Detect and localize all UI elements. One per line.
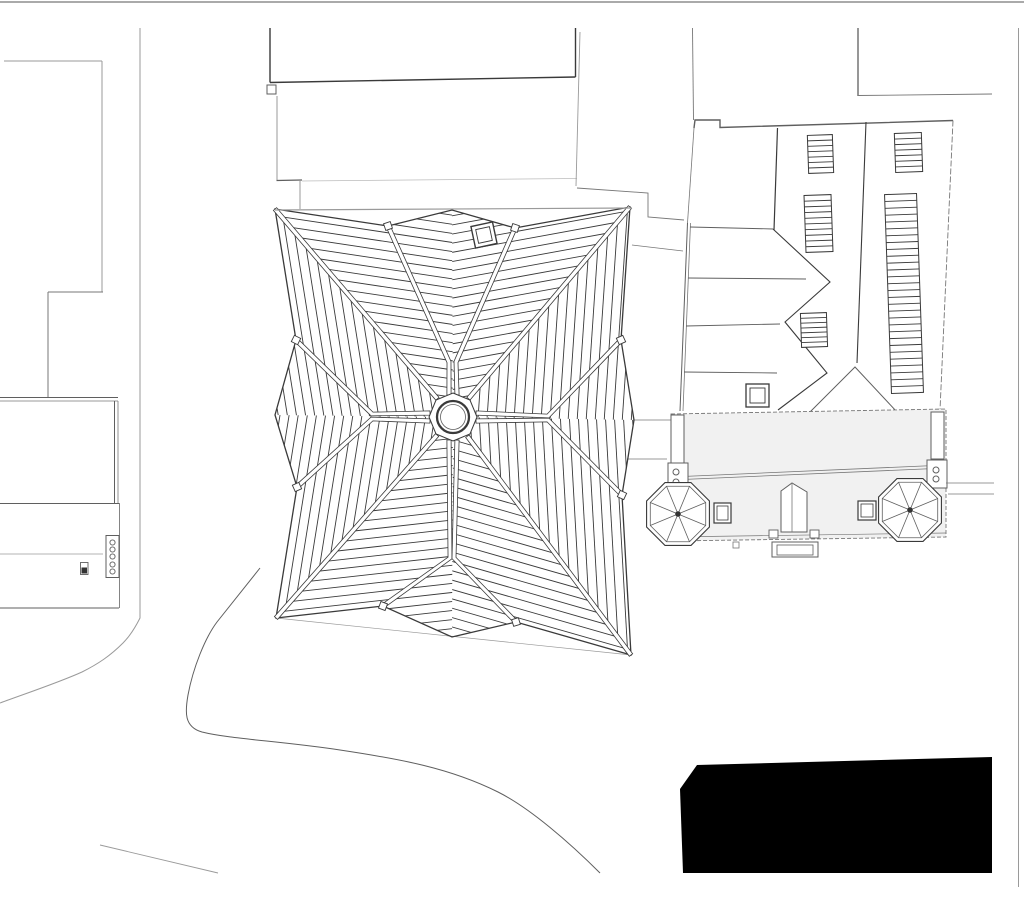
meter-box-symbol [106, 536, 119, 578]
road-edge-left [0, 28, 140, 703]
black-building-mass [680, 757, 992, 873]
roof-hatch-panel [804, 195, 833, 253]
hatch-lines [199, 361, 531, 690]
site-plan-canvas [0, 0, 1024, 913]
nave-skylight [746, 384, 769, 407]
utility-box-symbol [81, 563, 89, 575]
church-building [647, 28, 994, 557]
roof-hatch-panel [807, 135, 833, 174]
site-plan-drawing [0, 0, 1024, 913]
top-building [267, 28, 576, 94]
roof-skylight [471, 222, 497, 248]
octagonal-tower [647, 483, 710, 546]
central-pavilion-roof [197, 141, 737, 730]
roof-hatch-panel [800, 313, 827, 348]
octagonal-tower [879, 479, 942, 542]
roof-hatch-panel [894, 133, 922, 173]
narthex-skylight [858, 501, 876, 520]
left-annex-building [0, 61, 120, 608]
roof-oculus-hub [429, 393, 477, 441]
narthex-skylight [714, 503, 731, 523]
roof-hatch-panel [885, 194, 924, 394]
small-junction-box [267, 85, 276, 94]
church-top-edge [694, 120, 953, 128]
